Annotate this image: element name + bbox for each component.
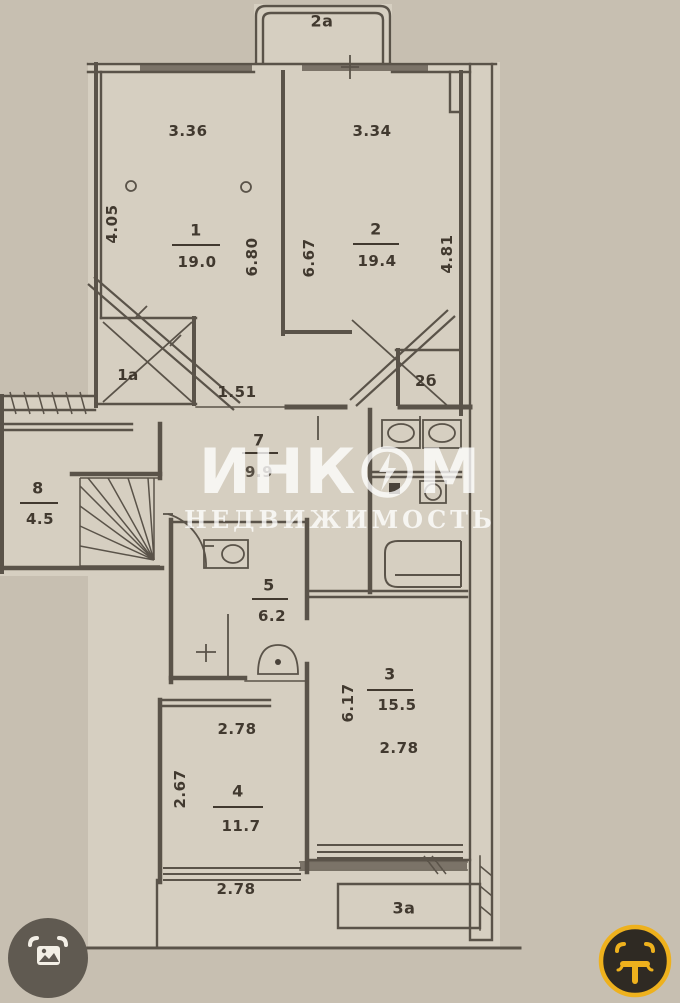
fraction-rule <box>252 598 288 600</box>
room5-number: 5 <box>263 576 275 595</box>
balcony-bottom-label: 3a <box>393 899 416 918</box>
room3-number: 3 <box>384 665 396 684</box>
closet2b-label: 2б <box>415 372 437 390</box>
watermark-text-left: ИНК <box>199 442 356 502</box>
fraction-rule <box>172 244 220 246</box>
room4-number: 4 <box>232 782 244 801</box>
fraction-rule <box>20 502 58 504</box>
room1-number: 1 <box>190 221 202 240</box>
room2-dim-left: 6.67 <box>300 238 318 277</box>
fraction-rule <box>367 689 413 691</box>
room4-dim-bottom: 2.78 <box>216 880 255 898</box>
inkom-watermark: ИНК М НЕДВИЖИМОСТЬ <box>184 442 496 534</box>
room4-area: 11.7 <box>221 817 260 835</box>
room1-area: 19.0 <box>177 253 216 271</box>
room1-dim-top: 3.36 <box>168 122 207 140</box>
room2-dim-top: 3.34 <box>352 122 391 140</box>
photo-scan-icon[interactable] <box>8 918 88 998</box>
fraction-rule <box>353 243 399 245</box>
room8-number: 8 <box>32 479 44 498</box>
watermark-subtitle: НЕДВИЖИМОСТЬ <box>184 505 496 534</box>
fraction-rule <box>213 806 263 808</box>
text-scan-icon[interactable] <box>597 923 673 999</box>
room3-dim-left: 6.17 <box>339 683 357 722</box>
room3-area: 15.5 <box>377 696 416 714</box>
room2-area: 19.4 <box>357 252 396 270</box>
room4-dim-top: 2.78 <box>217 720 256 738</box>
floor-plan: 2a 3.36 4.05 1 19.0 6.80 3.34 6.67 2 19.… <box>0 0 680 960</box>
room2-dim-right: 4.81 <box>438 234 456 273</box>
closet1a-label: 1a <box>117 366 139 384</box>
room2-number: 2 <box>370 220 382 239</box>
room3-dim-width: 2.78 <box>379 739 418 757</box>
room1-dim-right: 6.80 <box>243 237 261 276</box>
passage-dim: 1.51 <box>217 383 256 401</box>
room1-dim-left: 4.05 <box>103 204 121 243</box>
watermark-text-right: М <box>418 442 481 502</box>
room5-area: 6.2 <box>258 607 286 625</box>
room4-dim-left: 2.67 <box>171 769 189 808</box>
lightning-circle-icon <box>359 444 415 500</box>
room8-area: 4.5 <box>26 510 54 528</box>
balcony-top-label: 2a <box>311 12 334 31</box>
